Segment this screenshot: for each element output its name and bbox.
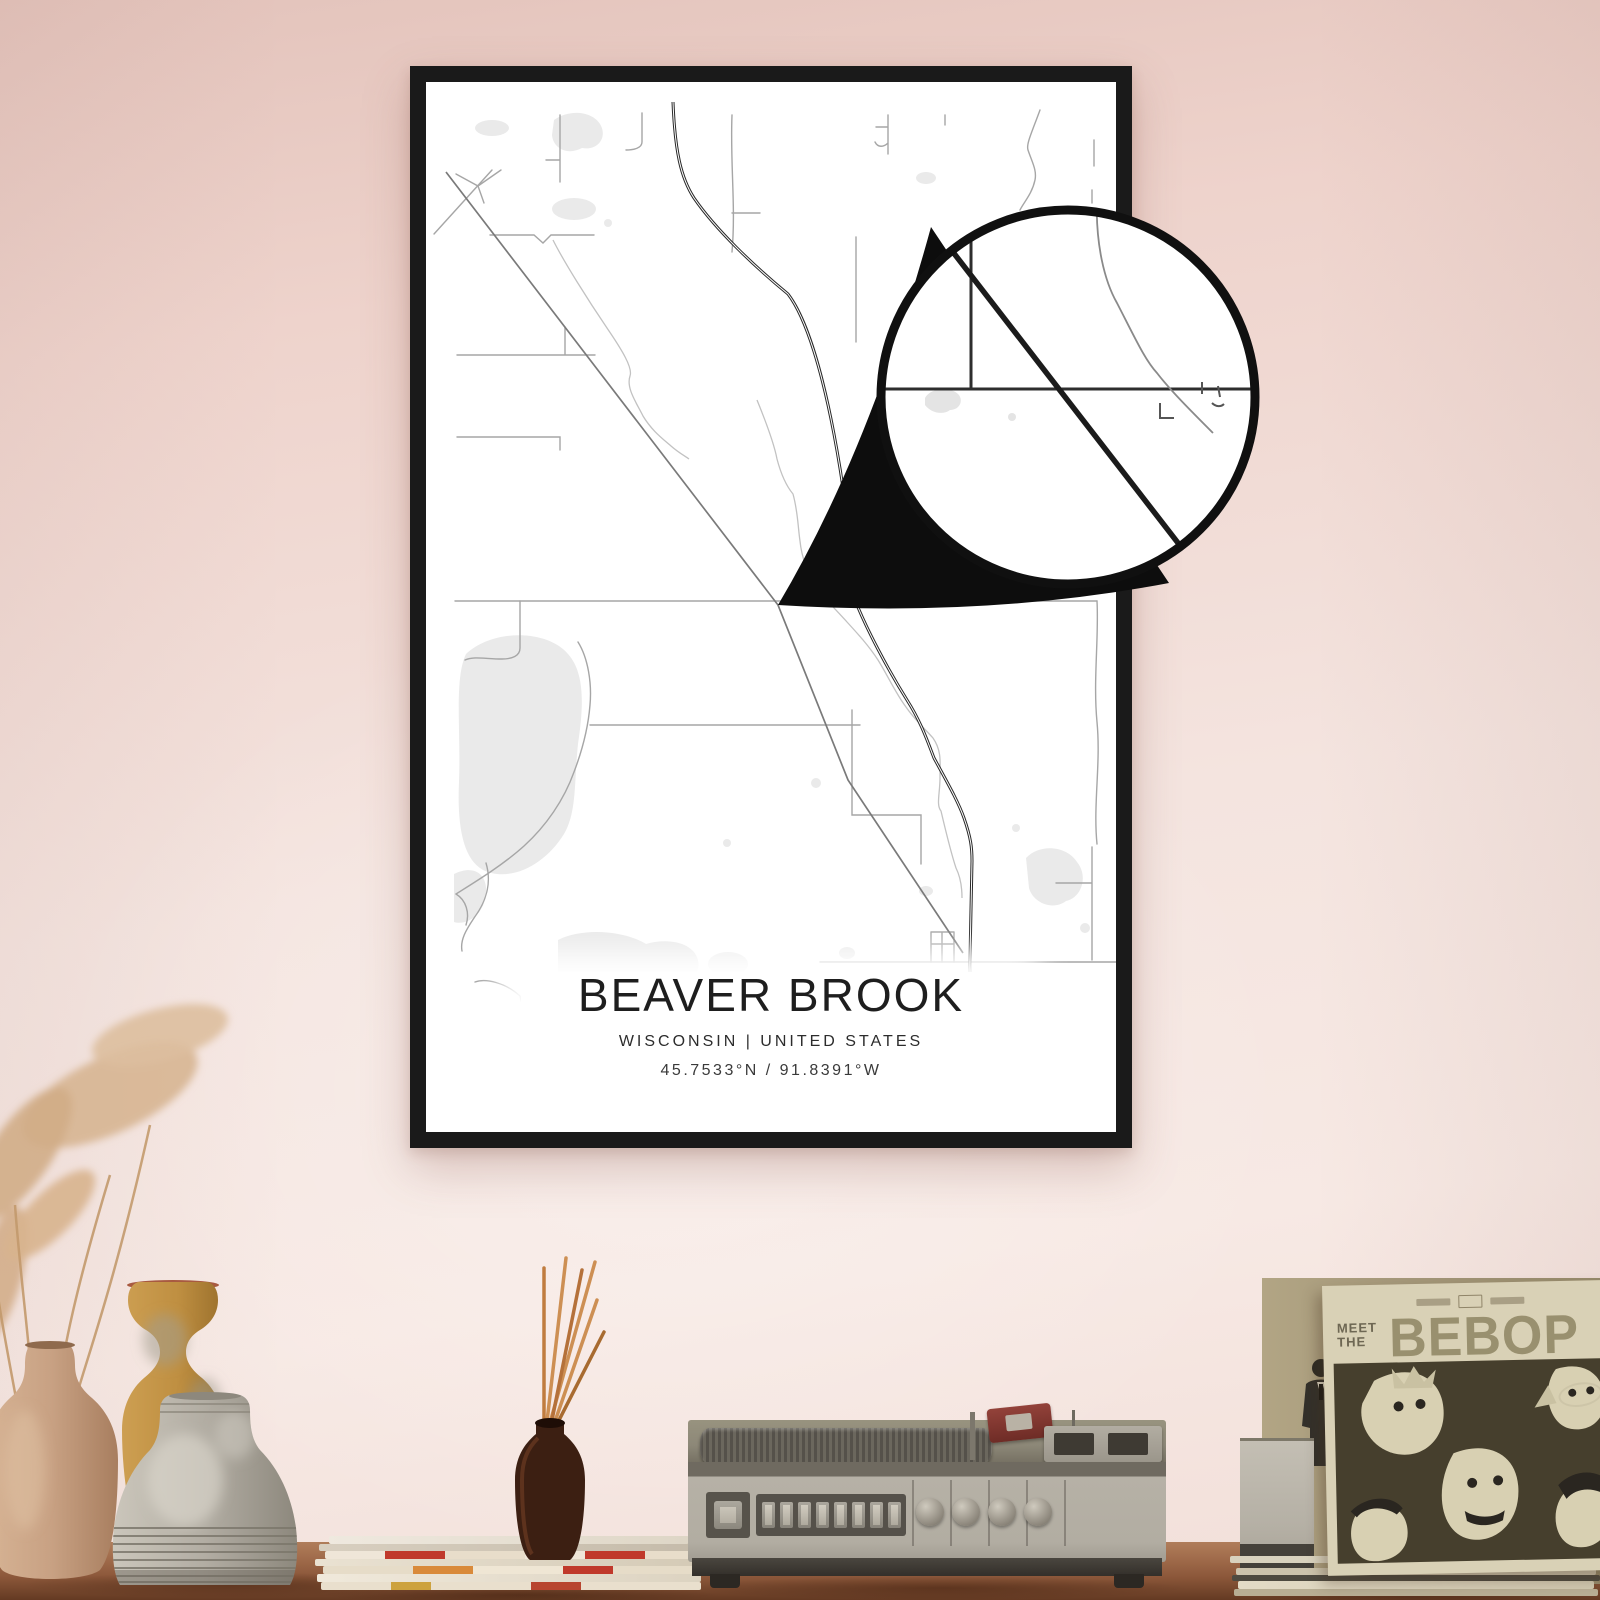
knob (952, 1498, 980, 1526)
record-sleeve-edge (1238, 1581, 1594, 1589)
incense-sticks (544, 1258, 604, 1430)
player-foot (710, 1574, 740, 1588)
room-scene: BEAVER BROOK WISCONSIN | UNITED STATES 4… (0, 0, 1600, 1600)
sleeve-art (1334, 1358, 1600, 1564)
poster-text-block: BEAVER BROOK WISCONSIN | UNITED STATES 4… (521, 972, 1021, 1080)
preset-button (798, 1502, 811, 1528)
preset-button (834, 1502, 847, 1528)
power-panel (706, 1492, 750, 1538)
incense-diffuser (500, 1248, 612, 1583)
knob (988, 1498, 1016, 1526)
incense-bottle (515, 1418, 585, 1560)
knob (1024, 1498, 1052, 1526)
record-sleeve-edge (1234, 1589, 1598, 1596)
preset-button (780, 1502, 793, 1528)
player-base (692, 1558, 1162, 1576)
sleeve-title-row: MEET THE BEBOP (1337, 1310, 1600, 1362)
sleeve-fineprint-mark (1490, 1297, 1524, 1305)
player-foot (1114, 1574, 1144, 1588)
preset-buttons (756, 1494, 906, 1536)
vase-tan (0, 1341, 118, 1579)
preset-button (870, 1502, 883, 1528)
sleeve-header-meet: MEET (1337, 1321, 1377, 1335)
sleeve-header: MEET THE (1337, 1321, 1378, 1349)
tonearm (970, 1412, 975, 1460)
preset-button (852, 1502, 865, 1528)
artwork-faces (1334, 1358, 1600, 1564)
player-front-panel (688, 1462, 1166, 1562)
poster-coordinates: 45.7533°N / 91.8391°W (521, 1062, 1021, 1080)
record-sleeve-bebop: MEET THE BEBOP (1322, 1280, 1600, 1576)
preset-button (762, 1502, 775, 1528)
record-player (688, 1398, 1166, 1590)
turntable-platter (700, 1428, 992, 1464)
magnifier (750, 170, 1310, 650)
preset-button (816, 1502, 829, 1528)
panel-groove (912, 1480, 914, 1546)
knob (916, 1498, 944, 1526)
cassette-window (1054, 1433, 1094, 1455)
poster-title: BEAVER BROOK (521, 972, 1021, 1018)
cassette-window (1108, 1433, 1148, 1455)
sleeve-fineprint-mark (1416, 1298, 1450, 1306)
cassette-deck (1044, 1426, 1162, 1462)
poster-subtitle: WISCONSIN | UNITED STATES (521, 1033, 1021, 1051)
panel-groove (1064, 1480, 1066, 1546)
sleeve-header-the: THE (1337, 1334, 1377, 1348)
stack-layer (321, 1582, 701, 1590)
power-button (714, 1501, 742, 1529)
preset-button (888, 1502, 901, 1528)
